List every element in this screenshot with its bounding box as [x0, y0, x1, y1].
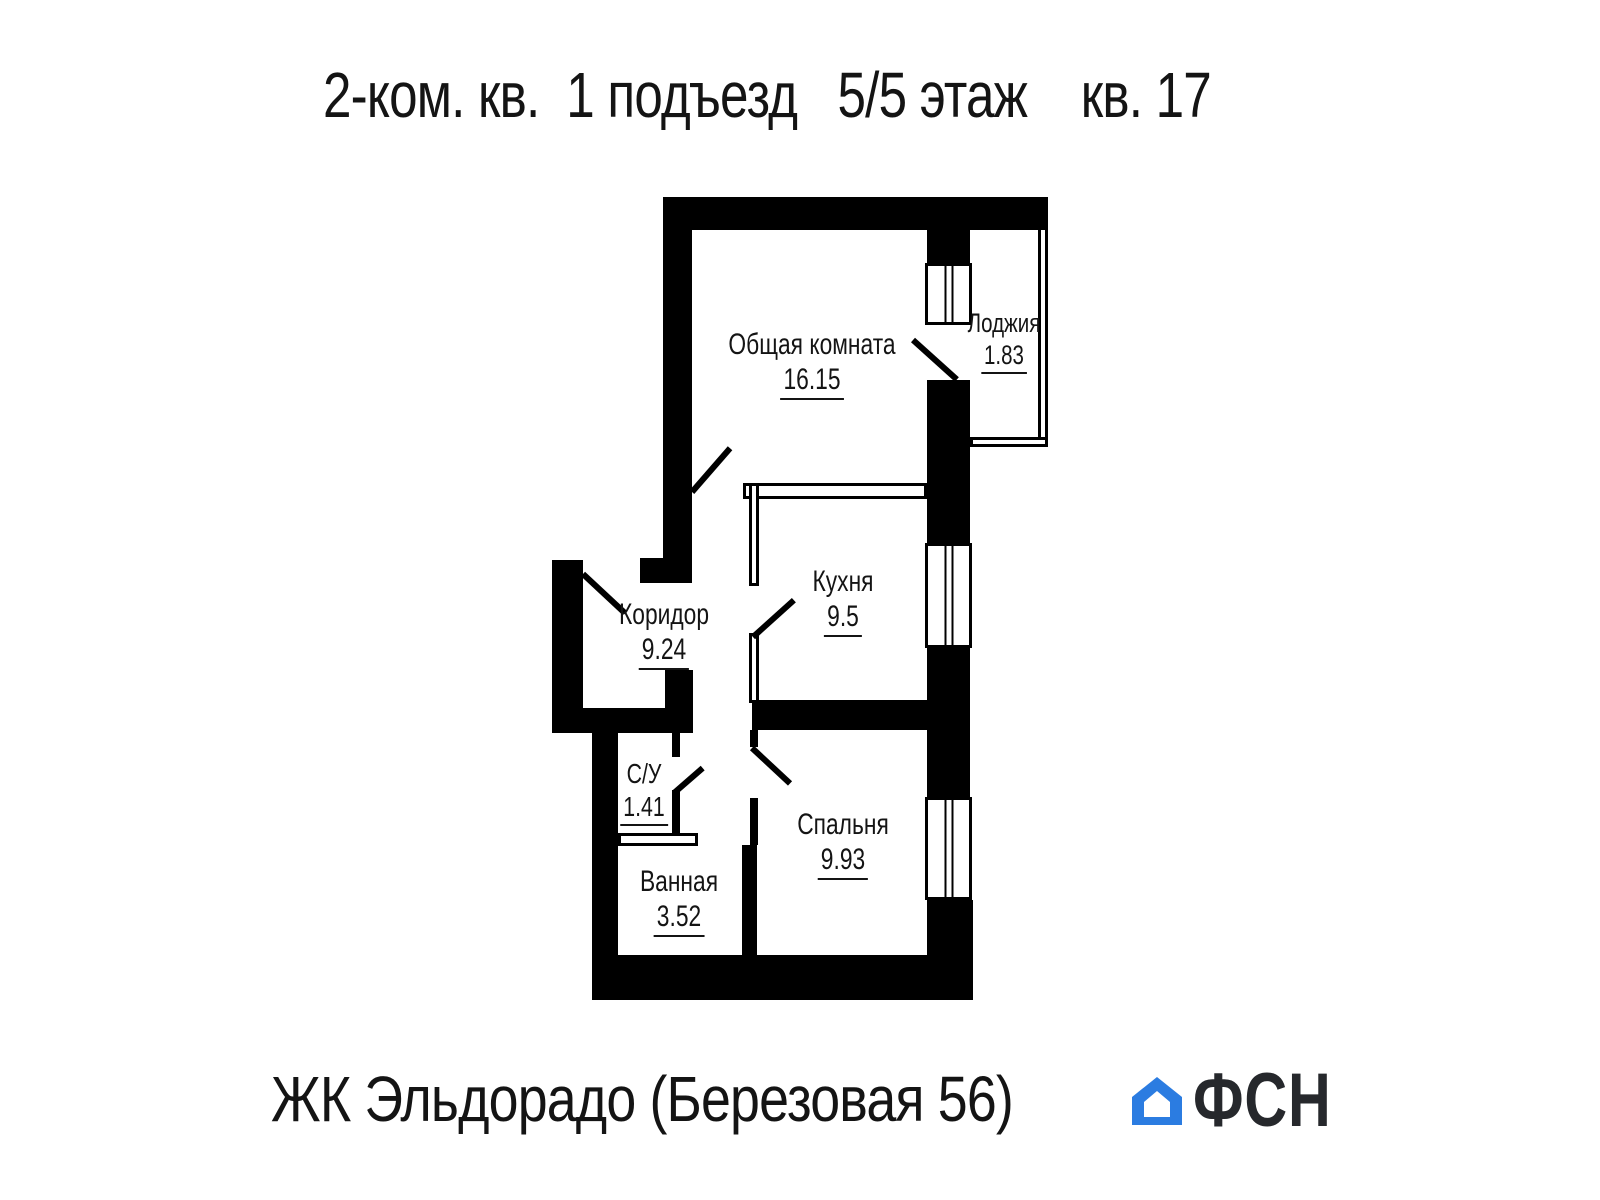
room-label-loggia: Лоджия 1.83 [968, 309, 1041, 374]
room-label-bath: Ванная 3.52 [640, 866, 718, 937]
window-kitchen [925, 543, 972, 648]
room-name: Кухня [812, 566, 873, 598]
door-kitchen-leaf [751, 598, 796, 639]
window-mullion [944, 545, 953, 646]
room-label-wc: С/У 1.41 [620, 759, 668, 826]
wall-wc-right-lower [672, 790, 680, 835]
room-name: Коридор [619, 599, 709, 631]
wall-corridor-bottom [552, 708, 693, 733]
room-area: 3.52 [640, 898, 718, 937]
wall-right-above-loggia-window [927, 227, 970, 263]
room-name: Спальня [797, 809, 889, 841]
window-bedroom [925, 797, 972, 900]
room-area: 1.41 [620, 789, 668, 826]
developer-logo: ФСН [1131, 1073, 1371, 1129]
wall-top [663, 197, 1048, 230]
door-bedroom-leaf [750, 746, 792, 786]
wall-bottom [592, 955, 973, 1000]
room-area: 9.93 [797, 841, 889, 880]
wall-right-middle [927, 648, 970, 797]
room-name: Общая комната [728, 329, 895, 361]
wall-wc-bath-divider [618, 833, 698, 846]
wall-entry-jamb [640, 558, 692, 583]
wall-kitchen-partition-lower [749, 633, 759, 703]
room-name: Лоджия [968, 309, 1041, 338]
wall-kitchen-partition-upper [749, 483, 759, 586]
project-name: ЖК Эльдорадо (Березовая 56) [271, 1066, 1013, 1132]
door-living-leaf [690, 446, 733, 494]
wall-kitchen-top [743, 483, 927, 499]
room-label-kitchen: Кухня 9.5 [812, 566, 873, 637]
wall-kitchen-bedroom [752, 700, 930, 730]
wall-living-left [663, 227, 692, 583]
room-area: 9.5 [812, 598, 873, 637]
wall-loggia-bottom [970, 437, 1048, 447]
logo-text: ФСН [1193, 1073, 1332, 1129]
window-loggia [925, 263, 972, 325]
room-label-bedroom: Спальня 9.93 [797, 809, 889, 880]
wall-corridor-left [552, 560, 583, 708]
room-area: 1.83 [968, 338, 1041, 374]
page: 2-ком. кв. 1 подъезд 5/5 этаж кв. 17 [0, 0, 1600, 1200]
room-name: Ванная [640, 866, 718, 898]
wall-wc-right-upper [672, 733, 680, 757]
wall-bedroom-left-upper [750, 730, 758, 747]
room-name: С/У [620, 759, 668, 789]
wall-bedroom-left-lower [750, 798, 758, 845]
wall-left-lower [592, 733, 618, 963]
floor-plan: Общая комната 16.15 Лоджия 1.83 Кухня 9.… [0, 0, 1600, 1200]
door-balcony-leaf [911, 338, 959, 382]
wall-right-upper [927, 380, 970, 543]
wall-corridor-stub [665, 670, 693, 708]
room-label-living: Общая комната 16.15 [728, 329, 895, 400]
house-icon [1131, 1076, 1183, 1126]
window-mullion [944, 265, 953, 323]
door-wc-leaf [672, 766, 705, 795]
room-area: 9.24 [619, 631, 709, 670]
window-mullion [944, 799, 953, 898]
wall-bath-bedroom [742, 845, 757, 957]
room-label-corridor: Коридор 9.24 [619, 599, 709, 670]
room-area: 16.15 [728, 361, 895, 400]
